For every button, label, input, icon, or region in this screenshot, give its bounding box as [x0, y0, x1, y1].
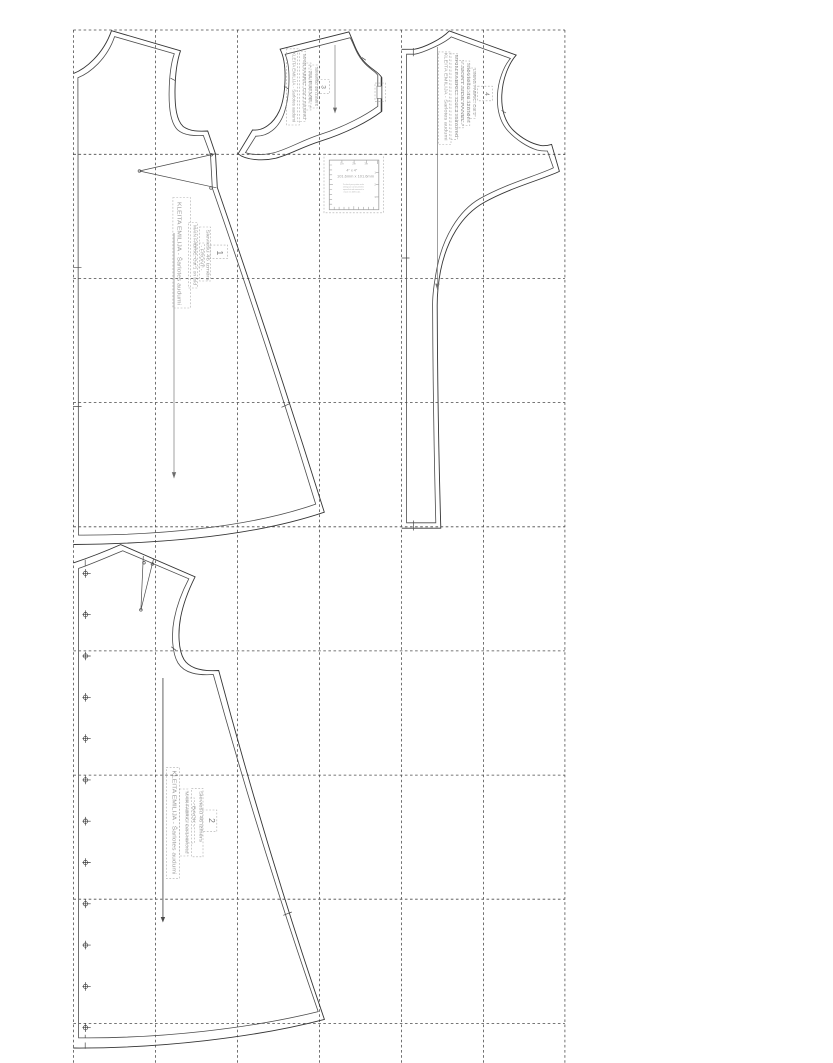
svg-text:MAIN FABRIC: Cut 2 mirrored: MAIN FABRIC: Cut 2 mirrored [454, 55, 459, 139]
svg-text:KLEITA EMILIJA - Šarlotes audu: KLEITA EMILIJA - Šarlotes audumi [444, 53, 450, 141]
svg-text:Sieviešu 46 izmērs: Sieviešu 46 izmērs [199, 791, 204, 843]
svg-text:3in: 3in [364, 161, 368, 165]
svg-text:1in: 1in [340, 161, 344, 165]
svg-text:Sieviešu 46 izmērs: Sieviešu 46 izmērs [314, 67, 319, 107]
svg-text:4: 4 [483, 92, 490, 96]
svg-text:2in: 2in [352, 161, 356, 165]
svg-text:4" x 4": 4" x 4" [346, 169, 358, 173]
svg-text:- SLEEVE -: - SLEEVE - [308, 66, 313, 109]
svg-text:Sieviešu 46 izmērs: Sieviešu 46 izmērs [206, 230, 211, 282]
svg-text:- BACK -: - BACK - [192, 802, 197, 828]
svg-text:2: 2 [207, 818, 217, 823]
svg-text:3: 3 [320, 85, 327, 89]
svg-text:- FRONT -: - FRONT - [200, 246, 205, 272]
svg-text:KLEITA EMILIJA - Šarlotes audu: KLEITA EMILIJA - Šarlotes audumi [171, 771, 178, 875]
svg-text:ensure it is 100% scale.: ensure it is 100% scale. [344, 191, 361, 194]
svg-text:KLEITA EMILIJA - Šarlotes audu: KLEITA EMILIJA - Šarlotes audumi [292, 52, 298, 122]
svg-text:KLEITA EMILIJA - Šarlotes audu: KLEITA EMILIJA - Šarlotes audumi [176, 202, 183, 305]
svg-text:MAIN FABRIC: Cut 2 mirrored: MAIN FABRIC: Cut 2 mirrored [302, 54, 307, 120]
svg-text:- SKIRT SIDE PANEL -: - SKIRT SIDE PANEL - [460, 62, 465, 127]
svg-text:LINING FABRIC: Cut 2: LINING FABRIC: Cut 2 [472, 69, 477, 116]
svg-text:101.6mm x 101.6mm: 101.6mm x 101.6mm [337, 174, 375, 179]
svg-text:1: 1 [215, 250, 225, 255]
svg-text:Sieviešu 46 izmērs: Sieviešu 46 izmērs [466, 63, 471, 124]
svg-text:MAIN FABRIC: Cut 1 on fold: MAIN FABRIC: Cut 1 on fold [193, 225, 198, 286]
svg-text:MAIN FABRIC: Cut 1 mirrored: MAIN FABRIC: Cut 1 mirrored [185, 792, 190, 855]
